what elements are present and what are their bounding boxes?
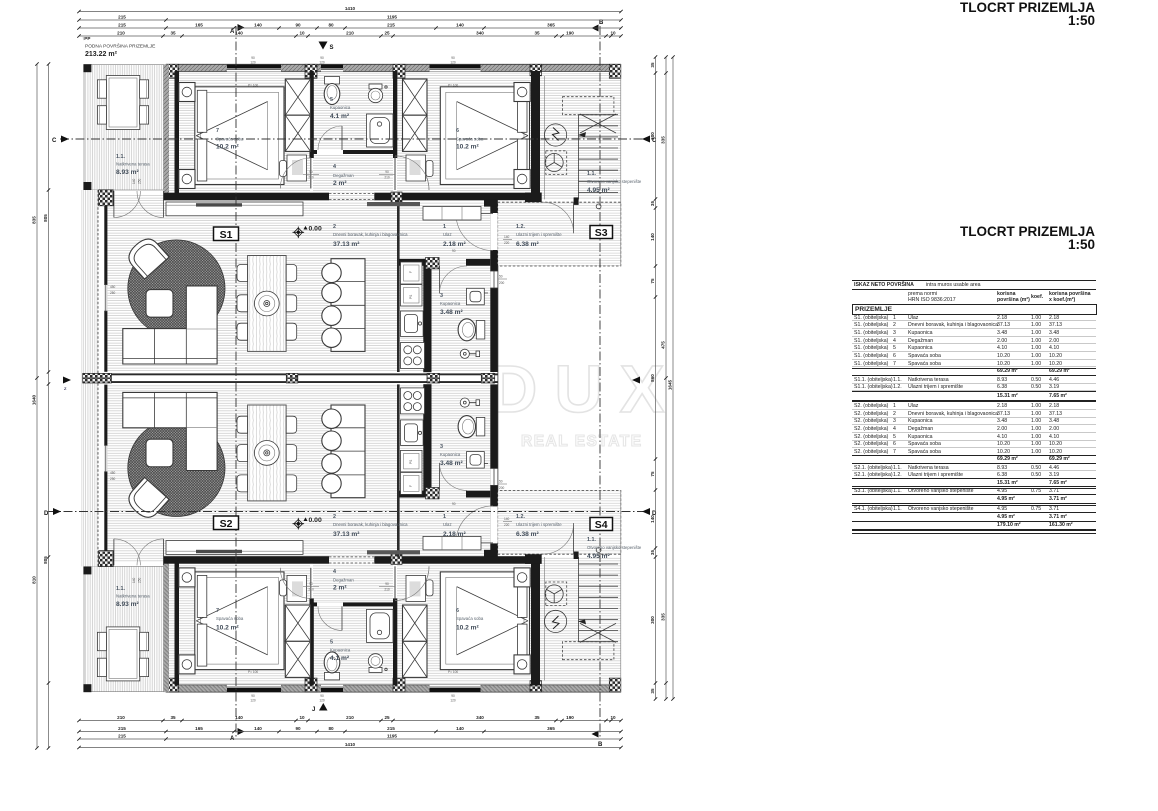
svg-text:4: 4	[333, 164, 336, 170]
svg-text:90: 90	[451, 694, 455, 698]
svg-text:Otvoreno vanjsko stepenište: Otvoreno vanjsko stepenište	[587, 545, 642, 550]
svg-text:140: 140	[504, 517, 510, 521]
svg-text:0.00: 0.00	[309, 226, 322, 233]
svg-text:8.93 m²: 8.93 m²	[116, 601, 140, 608]
svg-text:P= 100: P= 100	[248, 670, 258, 674]
svg-text:80: 80	[328, 726, 334, 731]
svg-text:215: 215	[118, 726, 126, 731]
svg-text:↑PP: ↑PP	[82, 36, 90, 41]
svg-text:F: F	[409, 485, 413, 487]
svg-text:Spavaća soba: Spavaća soba	[456, 616, 484, 621]
svg-text:1195: 1195	[387, 15, 397, 20]
svg-text:90: 90	[451, 56, 455, 60]
svg-text:250: 250	[138, 577, 142, 583]
svg-text:365: 365	[547, 23, 555, 28]
svg-text:220: 220	[504, 523, 510, 527]
svg-text:25: 25	[384, 31, 390, 36]
svg-text:3.48 m²: 3.48 m²	[440, 460, 464, 467]
svg-text:Kupaonica: Kupaonica	[330, 648, 351, 653]
svg-text:50: 50	[499, 480, 503, 484]
svg-text:REAL ESTATE: REAL ESTATE	[521, 433, 643, 450]
svg-text:220: 220	[504, 241, 510, 245]
svg-text:Ulaz: Ulaz	[443, 522, 452, 527]
svg-text:Kupaonica: Kupaonica	[440, 301, 461, 306]
svg-text:35: 35	[534, 31, 540, 36]
svg-text:1.1.: 1.1.	[587, 537, 596, 543]
svg-text:Kupaonica: Kupaonica	[330, 105, 351, 110]
svg-text:140: 140	[456, 726, 464, 731]
svg-text:4.1 m²: 4.1 m²	[330, 655, 350, 662]
svg-text:140: 140	[504, 235, 510, 239]
svg-text:335: 335	[661, 136, 666, 144]
svg-text:Degažman: Degažman	[333, 578, 354, 583]
svg-text:805: 805	[43, 214, 48, 222]
svg-text:835: 835	[32, 216, 37, 224]
svg-text:140: 140	[235, 31, 243, 36]
svg-text:S: S	[330, 45, 334, 51]
svg-text:1.2.: 1.2.	[516, 514, 525, 520]
svg-text:860: 860	[650, 374, 655, 382]
svg-text:B: B	[598, 742, 603, 748]
svg-text:10.2 m²: 10.2 m²	[456, 144, 480, 151]
svg-text:10: 10	[299, 715, 305, 720]
svg-text:210: 210	[117, 715, 125, 720]
svg-text:140: 140	[132, 178, 136, 184]
svg-text:140: 140	[254, 23, 262, 28]
svg-text:6: 6	[456, 128, 459, 134]
svg-text:335: 335	[661, 613, 666, 621]
svg-text:PS: PS	[409, 460, 413, 464]
svg-text:Natkrivena terasa: Natkrivena terasa	[116, 594, 150, 599]
svg-text:S1: S1	[220, 229, 233, 241]
svg-text:J: J	[312, 707, 315, 713]
svg-text:S4: S4	[595, 519, 608, 531]
svg-text:165: 165	[195, 726, 203, 731]
svg-text:90: 90	[320, 56, 324, 60]
svg-text:250: 250	[138, 178, 142, 184]
svg-text:10.2 m²: 10.2 m²	[216, 144, 240, 151]
svg-text:37.13 m²: 37.13 m²	[333, 531, 360, 538]
svg-text:10: 10	[610, 31, 616, 36]
svg-text:4.95 m²: 4.95 m²	[587, 187, 611, 194]
svg-text:120: 120	[450, 61, 456, 65]
svg-text:2 m²: 2 m²	[333, 180, 347, 187]
svg-text:140: 140	[132, 577, 136, 583]
svg-text:Degažman: Degažman	[333, 173, 354, 178]
svg-text:120: 120	[250, 61, 256, 65]
svg-text:35: 35	[650, 550, 655, 556]
svg-text:90: 90	[385, 170, 389, 174]
svg-text:340: 340	[476, 715, 484, 720]
svg-text:300: 300	[650, 132, 655, 140]
svg-text:10.2 m²: 10.2 m²	[216, 625, 240, 632]
svg-text:10: 10	[299, 31, 305, 36]
svg-text:P= 100: P= 100	[248, 84, 258, 88]
svg-text:B: B	[599, 20, 604, 26]
svg-text:210: 210	[308, 176, 314, 180]
svg-text:90: 90	[452, 502, 456, 506]
svg-text:215: 215	[387, 23, 395, 28]
svg-text:75: 75	[650, 278, 655, 284]
svg-text:37.13 m²: 37.13 m²	[333, 241, 360, 248]
svg-text:1645: 1645	[668, 379, 673, 390]
svg-text:75: 75	[650, 471, 655, 477]
svg-text:1410: 1410	[345, 742, 356, 747]
svg-text:90: 90	[251, 694, 255, 698]
svg-text:PS: PS	[409, 295, 413, 299]
svg-text:PODNA POVRŠINA PRIZEMLJE: PODNA POVRŠINA PRIZEMLJE	[85, 43, 155, 50]
svg-text:1640: 1640	[32, 394, 37, 405]
svg-text:35: 35	[650, 688, 655, 694]
svg-text:35: 35	[170, 31, 176, 36]
svg-text:213.22 m²: 213.22 m²	[85, 51, 118, 58]
svg-text:475: 475	[661, 341, 666, 349]
svg-text:35: 35	[534, 715, 540, 720]
svg-text:90: 90	[295, 726, 301, 731]
svg-text:250: 250	[110, 477, 116, 481]
svg-text:90: 90	[309, 170, 313, 174]
svg-text:1: 1	[443, 514, 446, 520]
svg-text:90: 90	[295, 23, 301, 28]
svg-text:2 m²: 2 m²	[333, 585, 347, 592]
svg-text:215: 215	[118, 23, 126, 28]
svg-text:90: 90	[309, 582, 313, 586]
svg-text:3: 3	[440, 444, 443, 450]
svg-text:190: 190	[566, 715, 574, 720]
svg-text:210: 210	[384, 588, 390, 592]
svg-text:450: 450	[110, 285, 116, 289]
svg-text:210: 210	[384, 176, 390, 180]
svg-text:210: 210	[346, 715, 354, 720]
svg-text:140: 140	[650, 515, 655, 523]
svg-text:2: 2	[333, 224, 336, 230]
svg-text:365: 365	[547, 726, 555, 731]
svg-text:1.2.: 1.2.	[516, 224, 525, 230]
svg-text:Ulazni trijem i spremište: Ulazni trijem i spremište	[516, 232, 562, 237]
svg-text:Natkrivena terasa: Natkrivena terasa	[116, 162, 150, 167]
svg-text:Spavaća soba: Spavaća soba	[216, 137, 244, 142]
svg-text:35: 35	[650, 62, 655, 68]
svg-text:4: 4	[333, 569, 336, 575]
svg-text:810: 810	[32, 576, 37, 584]
svg-text:1.1.: 1.1.	[587, 171, 596, 177]
svg-text:4.95 m²: 4.95 m²	[587, 553, 611, 560]
svg-text:7: 7	[216, 608, 219, 614]
svg-text:Dnevni boravak, kuhinja i blag: Dnevni boravak, kuhinja i blagovaonica	[333, 232, 408, 237]
svg-text:1.1.: 1.1.	[116, 154, 125, 160]
svg-text:6: 6	[456, 608, 459, 614]
svg-text:3.48 m²: 3.48 m²	[440, 309, 464, 316]
svg-text:120: 120	[450, 699, 456, 703]
svg-text:Otvoreno vanjsko stepenište: Otvoreno vanjsko stepenište	[587, 179, 642, 184]
svg-text:0.00: 0.00	[309, 517, 322, 524]
svg-text:210: 210	[308, 588, 314, 592]
svg-text:215: 215	[387, 726, 395, 731]
svg-text:200: 200	[499, 281, 505, 285]
svg-text:35: 35	[170, 715, 176, 720]
svg-text:140: 140	[254, 726, 262, 731]
svg-text:10: 10	[610, 715, 616, 720]
svg-text:90: 90	[452, 249, 456, 253]
svg-text:165: 165	[195, 23, 203, 28]
svg-text:2.18 m²: 2.18 m²	[443, 241, 467, 248]
svg-text:Ulaz: Ulaz	[443, 232, 452, 237]
svg-text:1410: 1410	[345, 6, 356, 11]
svg-text:Spavaća soba: Spavaća soba	[456, 137, 484, 142]
svg-text:P= 100: P= 100	[448, 84, 458, 88]
svg-text:450: 450	[110, 471, 116, 475]
svg-text:Ulazni trijem i spremište: Ulazni trijem i spremište	[516, 522, 562, 527]
svg-text:215: 215	[118, 15, 126, 20]
svg-text:25: 25	[384, 715, 390, 720]
svg-text:1: 1	[443, 224, 446, 230]
svg-text:6.38 m²: 6.38 m²	[516, 241, 540, 248]
svg-text:215: 215	[118, 734, 126, 739]
svg-text:200: 200	[499, 486, 505, 490]
svg-text:1.1.: 1.1.	[116, 586, 125, 592]
svg-text:DUX: DUX	[489, 352, 681, 427]
svg-text:Dnevni boravak, kuhinja i blag: Dnevni boravak, kuhinja i blagovaonica	[333, 522, 408, 527]
svg-text:120: 120	[319, 699, 325, 703]
svg-text:190: 190	[566, 31, 574, 36]
svg-text:140: 140	[650, 233, 655, 241]
svg-text:Spavaća soba: Spavaća soba	[216, 616, 244, 621]
svg-text:S3: S3	[595, 227, 608, 239]
svg-text:5: 5	[330, 97, 333, 103]
svg-text:S2: S2	[220, 518, 233, 530]
svg-text:340: 340	[476, 31, 484, 36]
svg-text:F: F	[409, 271, 413, 273]
svg-text:4.1 m²: 4.1 m²	[330, 113, 350, 120]
svg-text:300: 300	[650, 616, 655, 624]
svg-text:3: 3	[440, 293, 443, 299]
svg-text:140: 140	[456, 23, 464, 28]
svg-text:80: 80	[328, 23, 334, 28]
svg-text:90: 90	[385, 582, 389, 586]
svg-text:2.18 m²: 2.18 m²	[443, 531, 467, 538]
svg-text:5: 5	[330, 640, 333, 646]
svg-text:35: 35	[650, 201, 655, 207]
svg-text:140: 140	[235, 715, 243, 720]
svg-text:2: 2	[333, 514, 336, 520]
svg-text:P= 100: P= 100	[448, 670, 458, 674]
svg-text:Kupaonica: Kupaonica	[440, 452, 461, 457]
svg-text:210: 210	[117, 31, 125, 36]
svg-text:805: 805	[43, 556, 48, 564]
svg-text:210: 210	[346, 31, 354, 36]
svg-text:1195: 1195	[387, 734, 397, 739]
svg-text:250: 250	[110, 291, 116, 295]
svg-text:120: 120	[250, 699, 256, 703]
svg-text:90: 90	[320, 694, 324, 698]
svg-text:10.2 m²: 10.2 m²	[456, 625, 480, 632]
svg-text:C: C	[52, 138, 57, 144]
svg-text:7: 7	[216, 128, 219, 134]
svg-text:50: 50	[499, 275, 503, 279]
svg-text:90: 90	[251, 56, 255, 60]
svg-text:8.93 m²: 8.93 m²	[116, 169, 140, 176]
svg-text:6.38 m²: 6.38 m²	[516, 531, 540, 538]
svg-text:120: 120	[319, 61, 325, 65]
